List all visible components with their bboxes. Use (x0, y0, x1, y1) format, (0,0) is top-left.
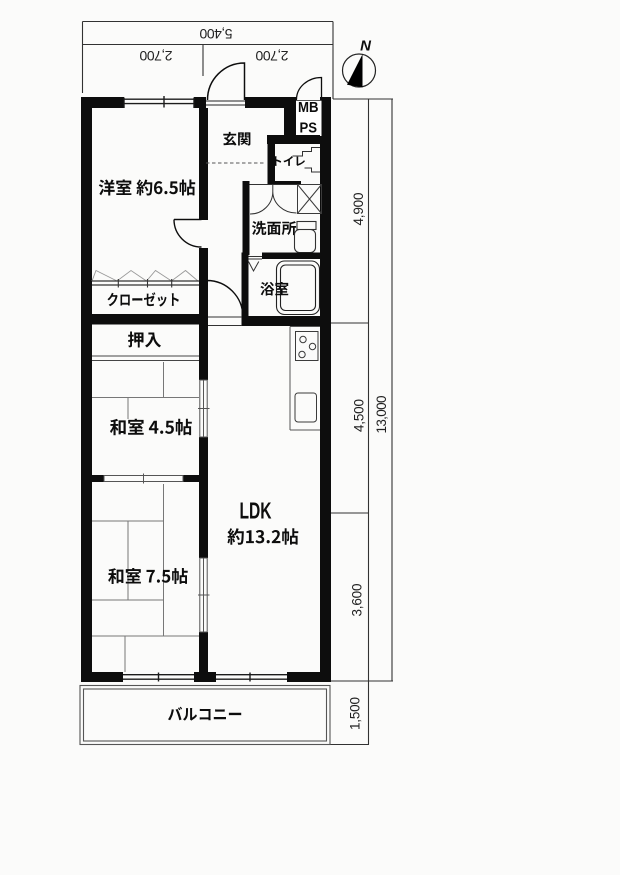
svg-text:LDK: LDK (240, 498, 272, 524)
svg-text:4,500: 4,500 (352, 399, 367, 432)
svg-text:13,000: 13,000 (374, 396, 389, 434)
svg-text:MB: MB (298, 99, 319, 116)
svg-text:1,500: 1,500 (348, 697, 363, 730)
svg-text:PS: PS (300, 120, 318, 137)
svg-text:5,400: 5,400 (199, 26, 232, 42)
svg-text:N: N (360, 38, 372, 55)
svg-text:3,600: 3,600 (350, 584, 365, 617)
svg-text:2,700: 2,700 (255, 48, 288, 64)
svg-text:2,700: 2,700 (139, 48, 172, 64)
svg-text:4,900: 4,900 (351, 193, 366, 226)
